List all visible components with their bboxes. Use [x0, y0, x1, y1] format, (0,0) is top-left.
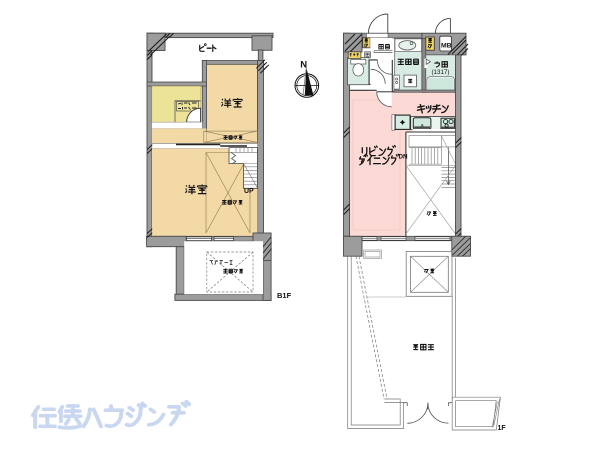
- svg-text:UP: UP: [244, 188, 254, 195]
- svg-text:1F: 1F: [498, 425, 507, 432]
- svg-text:N: N: [300, 59, 307, 70]
- svg-text:B1F: B1F: [277, 291, 292, 300]
- svg-text:(1317): (1317): [432, 69, 450, 76]
- svg-text:DN: DN: [399, 153, 409, 160]
- svg-text:MB: MB: [441, 43, 452, 50]
